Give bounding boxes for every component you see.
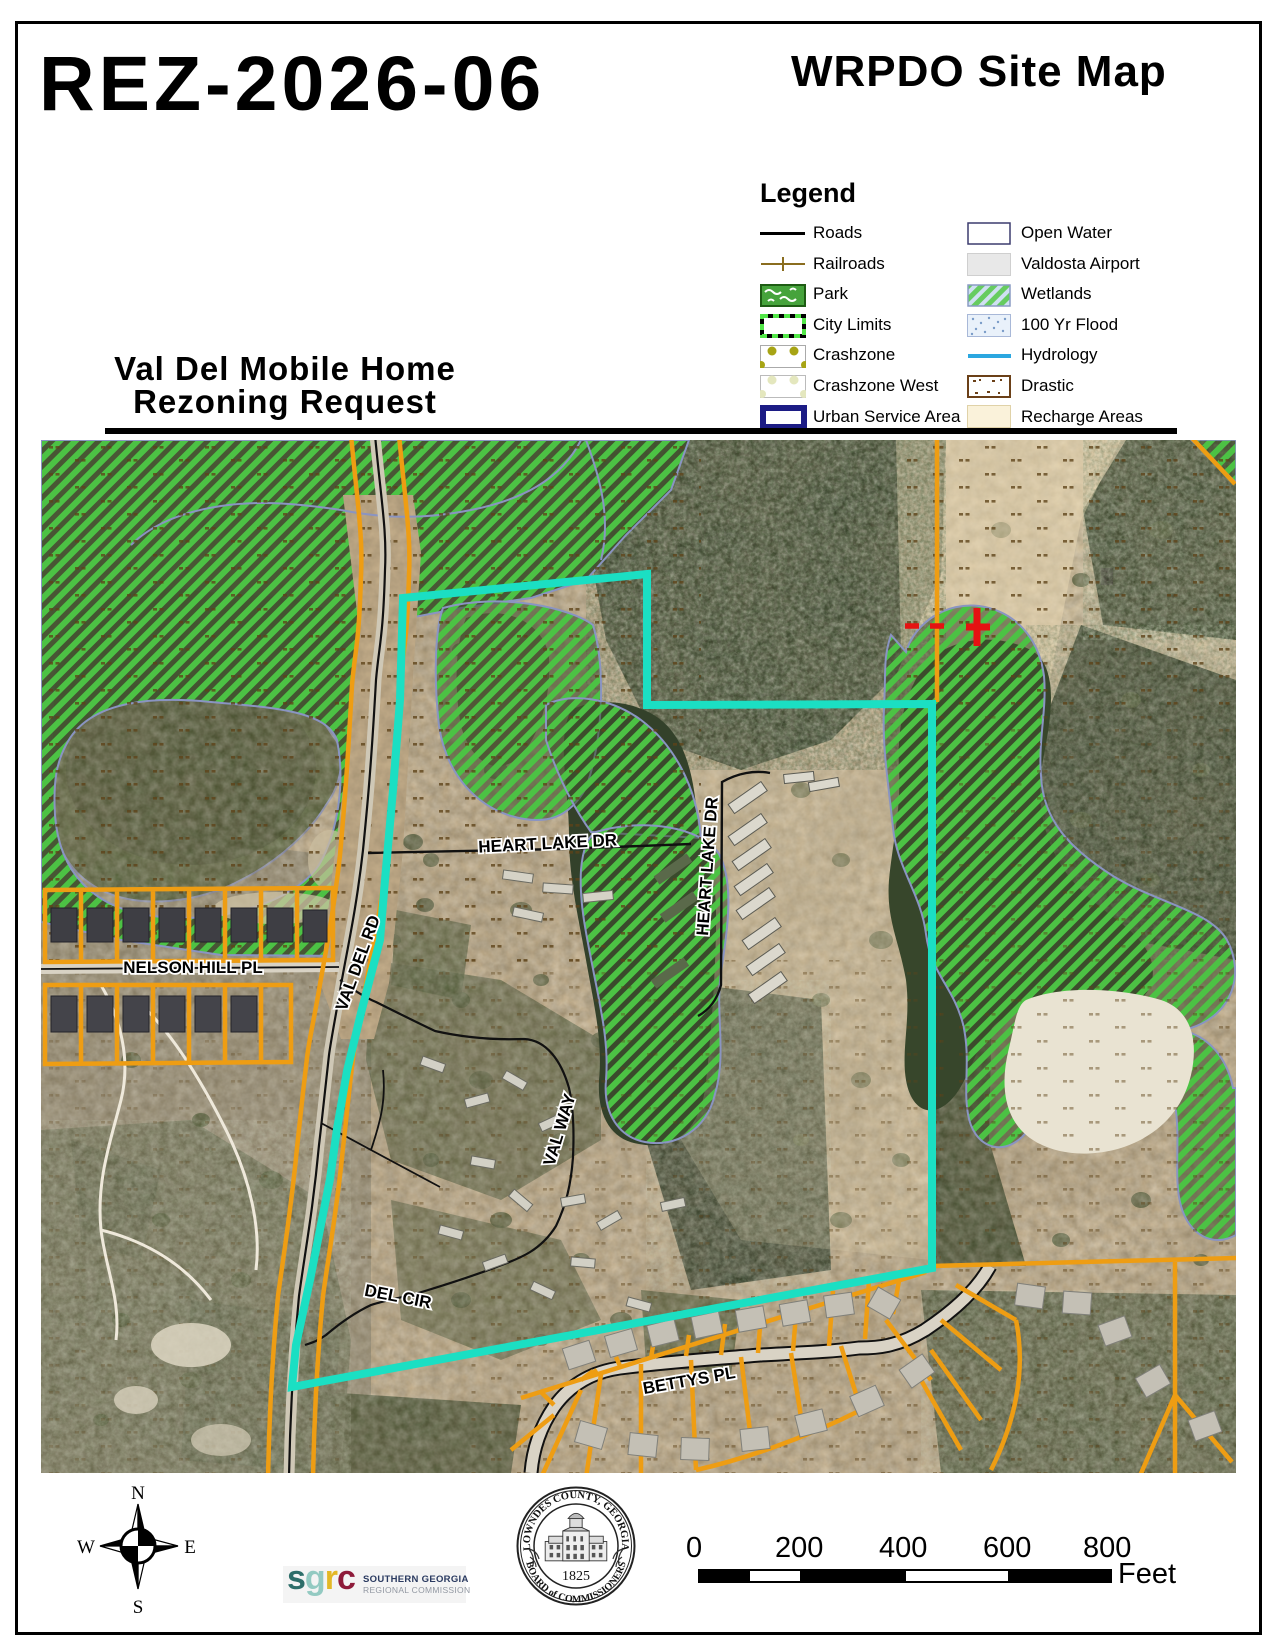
svg-text:1825: 1825 (562, 1569, 590, 1584)
svg-text:E: E (184, 1537, 196, 1558)
svg-text:W: W (77, 1537, 95, 1558)
svg-text:NELSON HILL PL: NELSON HILL PL (123, 958, 262, 977)
svg-text:N: N (131, 1483, 145, 1504)
svg-text:S: S (133, 1597, 144, 1618)
